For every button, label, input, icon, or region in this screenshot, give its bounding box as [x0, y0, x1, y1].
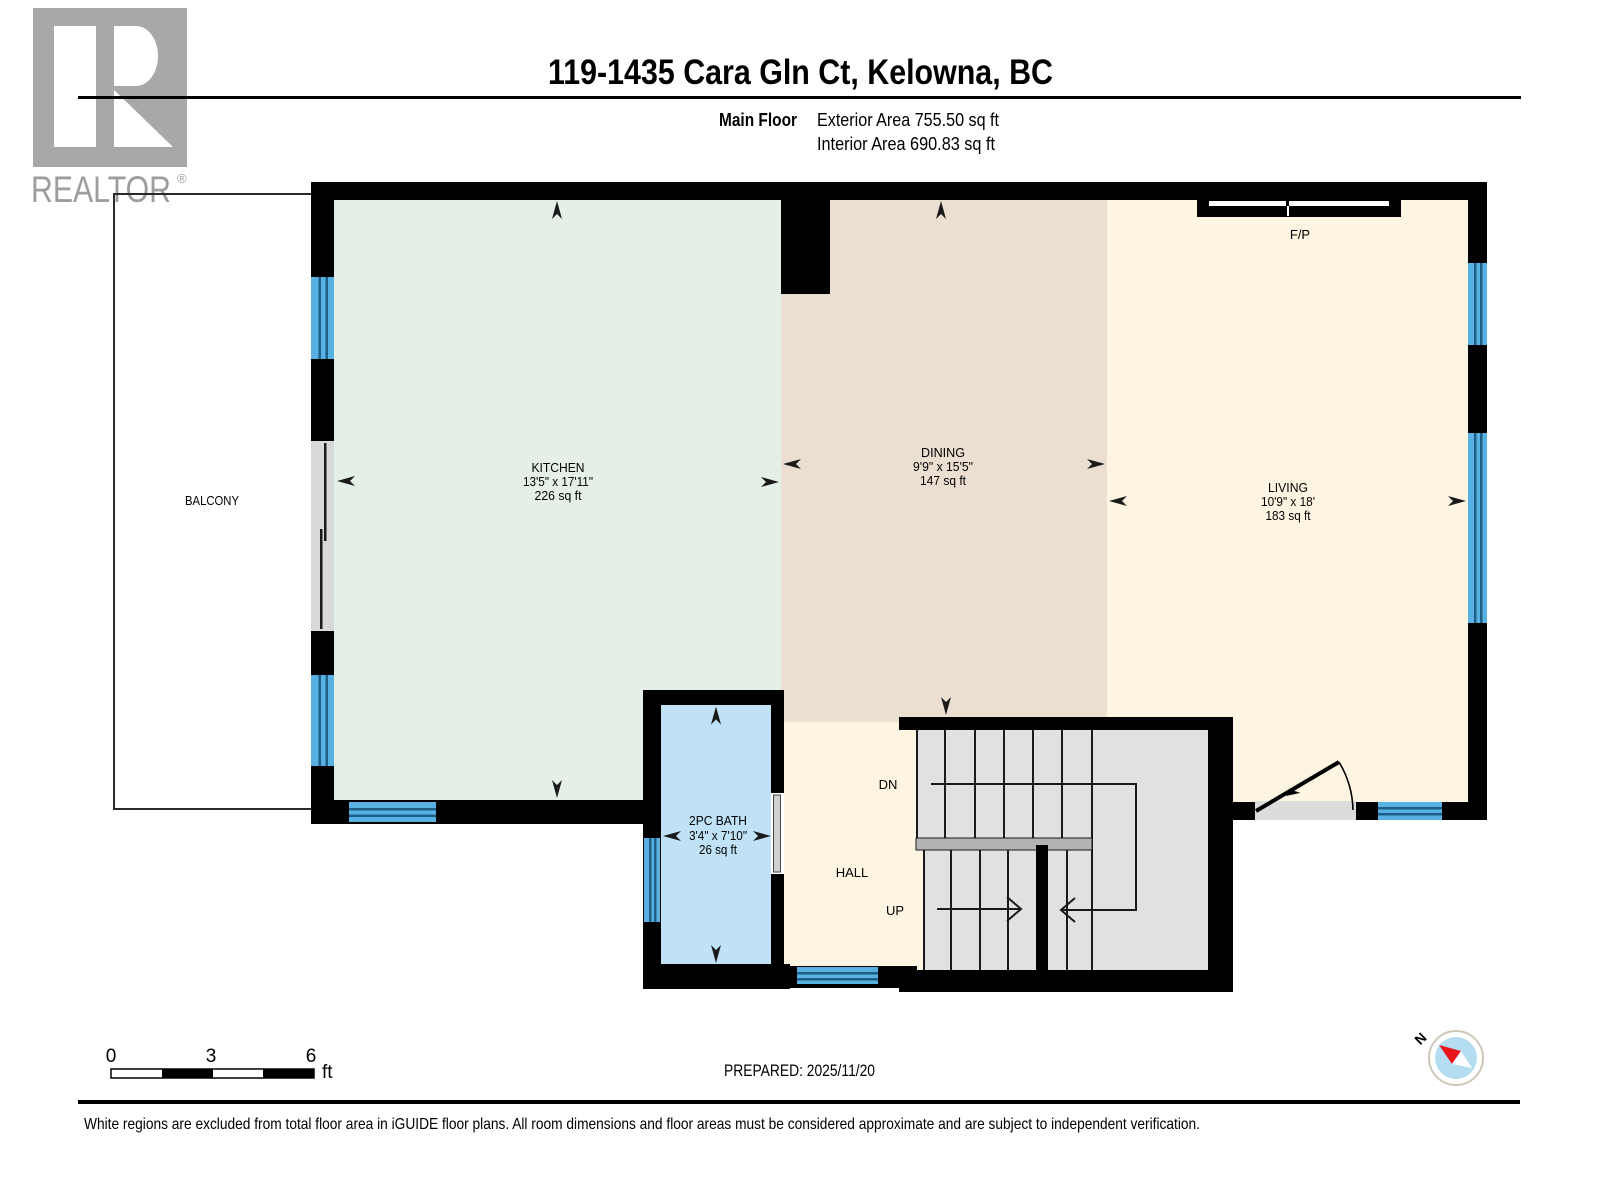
svg-text:3: 3 — [206, 1046, 217, 1067]
svg-text:2PC BATH: 2PC BATH — [689, 813, 747, 828]
svg-text:DN: DN — [879, 777, 898, 792]
svg-text:26 sq ft: 26 sq ft — [699, 842, 737, 857]
svg-text:3'4" x 7'10": 3'4" x 7'10" — [689, 828, 747, 843]
svg-text:119-1435 Cara Gln Ct, Kelowna,: 119-1435 Cara Gln Ct, Kelowna, BC — [548, 53, 1053, 92]
svg-text:KITCHEN: KITCHEN — [532, 460, 585, 475]
svg-text:LIVING: LIVING — [1268, 480, 1308, 495]
svg-text:Exterior Area 755.50 sq ft: Exterior Area 755.50 sq ft — [817, 110, 999, 130]
svg-text:0: 0 — [106, 1046, 117, 1067]
svg-text:Main Floor: Main Floor — [719, 110, 797, 130]
svg-text:10'9" x 18': 10'9" x 18' — [1261, 494, 1315, 509]
svg-text:226 sq ft: 226 sq ft — [535, 488, 582, 503]
svg-text:13'5" x 17'11": 13'5" x 17'11" — [523, 474, 593, 489]
svg-text:183 sq ft: 183 sq ft — [1266, 508, 1311, 523]
svg-text:REALTOR: REALTOR — [31, 169, 171, 210]
svg-text:PREPARED: 2025/11/20: PREPARED: 2025/11/20 — [724, 1061, 875, 1080]
svg-text:White regions are excluded fro: White regions are excluded from total fl… — [84, 1116, 1200, 1133]
svg-text:9'9" x 15'5": 9'9" x 15'5" — [913, 459, 973, 474]
svg-text:6: 6 — [306, 1046, 317, 1067]
svg-text:147 sq ft: 147 sq ft — [920, 473, 966, 488]
svg-text:®: ® — [177, 171, 187, 186]
svg-text:UP: UP — [886, 903, 904, 918]
svg-text:ft: ft — [322, 1062, 333, 1083]
svg-text:BALCONY: BALCONY — [185, 493, 239, 508]
svg-text:F/P: F/P — [1290, 227, 1310, 242]
svg-text:HALL: HALL — [836, 865, 869, 880]
svg-text:Interior Area 690.83 sq ft: Interior Area 690.83 sq ft — [817, 134, 995, 154]
svg-text:DINING: DINING — [921, 445, 965, 460]
